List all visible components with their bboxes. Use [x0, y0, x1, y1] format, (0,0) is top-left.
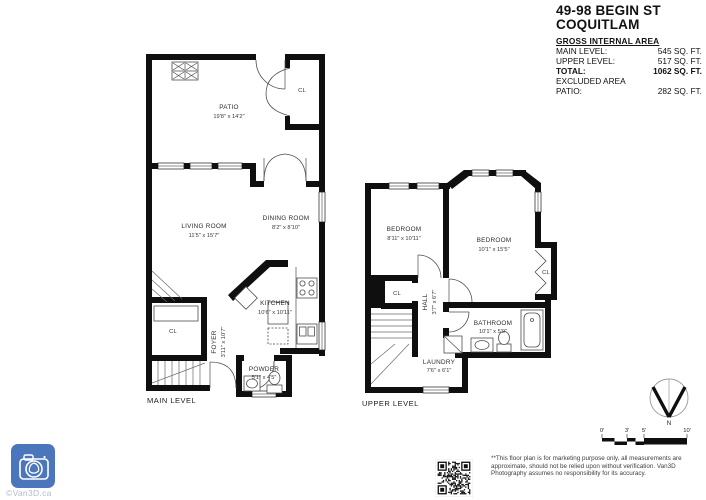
dining-room-label: DINING ROOM	[263, 215, 310, 222]
area-row-total: TOTAL: 1062 SQ. FT.	[556, 66, 702, 76]
hall-closet-label: CL	[393, 291, 401, 297]
patio-dims: 19'8" x 14'2"	[213, 114, 244, 120]
patio-label: PATIO	[219, 104, 238, 111]
foyer-dims: 3'11" x 10'7"	[221, 327, 227, 358]
upper-level-fixtures	[371, 310, 543, 384]
scale-ticks	[602, 434, 687, 438]
compass: N	[645, 376, 695, 428]
camera-icon	[11, 444, 55, 488]
title-city: COQUITLAM	[556, 18, 702, 32]
scale-tick-label: 0'	[600, 428, 604, 434]
excluded-area-heading: EXCLUDED AREA	[556, 76, 702, 86]
qr-code	[435, 459, 473, 497]
bathtub-icon	[521, 310, 543, 350]
bedroom1-label: BEDROOM	[387, 226, 422, 233]
bbq-grill-icon	[172, 62, 198, 80]
area-value: 545 SQ. FT.	[658, 46, 702, 56]
bedroom2-closet-label: CL	[542, 270, 550, 276]
bedroom1-dims: 8'11" x 10'11"	[387, 236, 421, 242]
foyer-closet-label: CL	[169, 329, 177, 335]
bathroom-label: BATHROOM	[474, 320, 512, 327]
logo-caption: ©Van3D.ca	[6, 488, 52, 498]
kitchen-sink-icon	[297, 324, 317, 344]
foyer-label: FOYER	[211, 330, 218, 353]
area-row-upper: UPPER LEVEL: 517 SQ. FT.	[556, 56, 702, 66]
closet-shelf	[154, 306, 198, 321]
living-room-dims: 11'5" x 15'7"	[189, 233, 220, 239]
area-row-patio: PATIO: 282 SQ. FT.	[556, 86, 702, 96]
van3d-logo	[11, 444, 55, 488]
area-label: PATIO:	[556, 86, 582, 96]
bathroom-dims: 10'1" x 5'9"	[479, 329, 507, 335]
area-label: UPPER LEVEL:	[556, 56, 615, 66]
patio-closet-label: CL	[298, 88, 306, 94]
washer-icon	[444, 336, 462, 353]
living-room-label: LIVING ROOM	[181, 223, 226, 230]
kitchen-dims: 10'6" x 10'11"	[258, 310, 292, 316]
dishwasher-icon	[268, 328, 288, 344]
floor-plan-page: 49-98 BEGIN ST COQUITLAM GROSS INTERNAL …	[0, 0, 706, 500]
powder-dims: 5'1" x 4'5"	[252, 375, 277, 381]
header: 49-98 BEGIN ST COQUITLAM GROSS INTERNAL …	[556, 4, 702, 96]
hall-label: HALL	[422, 293, 429, 310]
powder-label: POWDER	[249, 366, 279, 373]
dining-room-dims: 8'2" x 8'10"	[272, 225, 300, 231]
page-title: 49-98 BEGIN ST COQUITLAM	[556, 4, 702, 32]
disclaimer-text: **This floor plan is for marketing purpo…	[491, 455, 687, 478]
bathroom-sink-icon	[471, 338, 493, 352]
laundry-label: LAUNDRY	[423, 359, 456, 366]
hall-dims: 3'7" x 6'7"	[432, 290, 438, 315]
area-label: MAIN LEVEL:	[556, 46, 607, 56]
area-value: 517 SQ. FT.	[658, 56, 702, 66]
scale-bar: 0' 3' 5' 10'	[598, 426, 694, 448]
kitchen-label: KITCHEN	[260, 300, 290, 307]
area-value: 282 SQ. FT.	[658, 86, 702, 96]
area-value: 1062 SQ. FT.	[653, 66, 702, 76]
gross-area-heading: GROSS INTERNAL AREA	[556, 36, 702, 46]
scale-tick-label: 3'	[625, 428, 629, 434]
stove-icon	[297, 278, 317, 298]
scale-tick-label: 5'	[642, 428, 646, 434]
area-label: TOTAL:	[556, 66, 586, 76]
title-street: 49-98 BEGIN ST	[556, 4, 702, 18]
scale-tick-label: 10'	[683, 428, 691, 434]
scale-blocks	[602, 438, 687, 445]
main-stairs	[152, 361, 205, 385]
main-level-title: MAIN LEVEL	[147, 396, 196, 405]
bifold-door	[535, 250, 546, 272]
bedroom2-dims: 10'1" x 15'5"	[478, 247, 509, 253]
area-row-main: MAIN LEVEL: 545 SQ. FT.	[556, 46, 702, 56]
bedroom2-label: BEDROOM	[477, 237, 512, 244]
laundry-dims: 7'6" x 6'1"	[427, 368, 452, 374]
upper-level-title: UPPER LEVEL	[362, 399, 419, 408]
upper-stairs	[371, 314, 412, 384]
upper-level-plan: BEDROOM 8'11" x 10'11" BEDROOM 10'1" x 1…	[355, 160, 600, 410]
main-level-plan: PATIO 19'8" x 14'2" CL LIVING ROOM 11'5"…	[140, 40, 350, 410]
